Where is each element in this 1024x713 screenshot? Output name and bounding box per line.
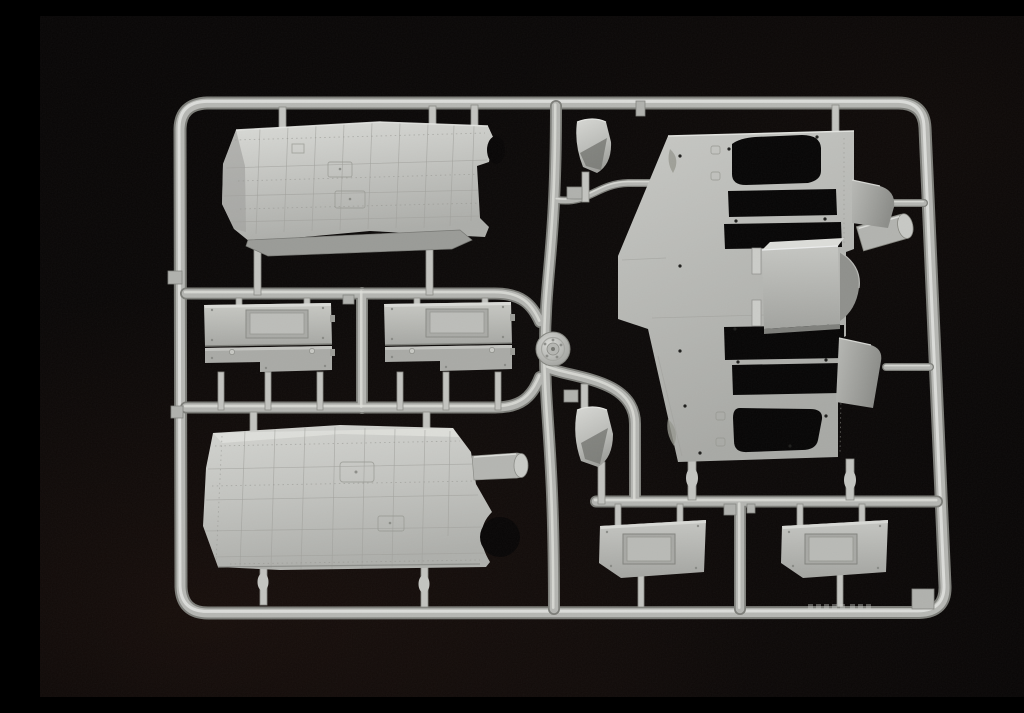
film-grain-overlay — [40, 16, 1024, 697]
sprue-svg — [40, 16, 1024, 697]
sprue-photo: Photograph of a light grey injection-mou… — [40, 16, 1024, 697]
